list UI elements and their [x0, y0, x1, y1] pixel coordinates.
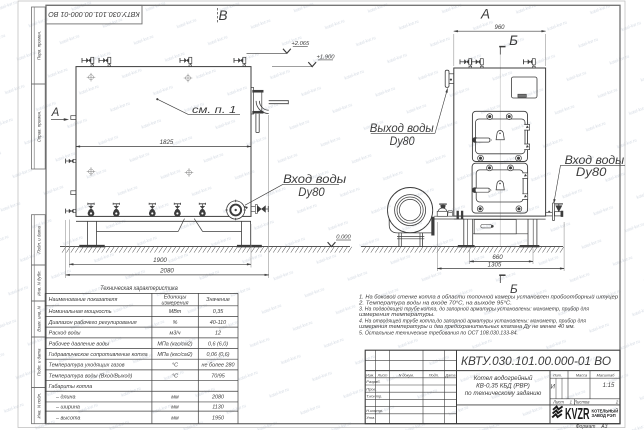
- svg-text:Подп. и дата: Подп. и дата: [36, 348, 41, 376]
- svg-text:KVZR: KVZR: [565, 406, 590, 423]
- svg-text:Справ. примен.: Справ. примен.: [36, 111, 41, 143]
- svg-text:1900: 1900: [153, 257, 167, 264]
- svg-text:+2.065: +2.065: [291, 41, 310, 47]
- svg-text:Подп. и дата: Подп. и дата: [36, 226, 41, 254]
- svg-text:измерения температуры.: измерения температуры.: [359, 312, 435, 318]
- svg-text:Котел водогрейный: Котел водогрейный: [474, 375, 533, 382]
- svg-text:МПа (кгс/см2): МПа (кгс/см2): [157, 341, 192, 347]
- svg-text:В: В: [218, 8, 227, 23]
- svg-text:Разраб.: Разраб.: [366, 379, 380, 384]
- svg-text:70/95: 70/95: [211, 373, 225, 379]
- svg-text:А3: А3: [600, 424, 607, 430]
- svg-text:Листов: Листов: [573, 400, 590, 405]
- svg-text:1305: 1305: [488, 261, 502, 268]
- svg-text:МВт: МВт: [169, 309, 182, 315]
- svg-text:5. Остальные технические треб: 5. Остальные технические требования по О…: [359, 330, 518, 336]
- svg-text:Изм.: Изм.: [366, 374, 374, 378]
- svg-text:не более 280: не более 280: [202, 363, 235, 369]
- svg-text:1950: 1950: [212, 416, 224, 422]
- svg-text:Пров.: Пров.: [366, 386, 377, 391]
- svg-text:Температура уходящих газов: Температура уходящих газов: [49, 363, 125, 369]
- svg-text:по техническому заданию: по техническому заданию: [465, 390, 542, 397]
- svg-text:Взам. инв. N: Взам. инв. N: [36, 305, 41, 331]
- svg-text:КВ-0,35 КБД (РВР): КВ-0,35 КБД (РВР): [476, 383, 530, 390]
- svg-text:%: %: [173, 320, 178, 326]
- svg-text:Рабочее давление воды: Рабочее давление воды: [49, 341, 109, 347]
- svg-text:Утв.: Утв.: [366, 415, 375, 420]
- svg-text:N докум.: N докум.: [399, 374, 414, 378]
- svg-text:ЗАВОД РЭП: ЗАВОД РЭП: [592, 413, 616, 418]
- svg-text:Н.контр.: Н.контр.: [366, 408, 383, 413]
- svg-text:0,06 (0,6): 0,06 (0,6): [206, 352, 229, 358]
- svg-text:мм: мм: [171, 416, 179, 422]
- svg-text:+1.900: +1.900: [317, 54, 336, 60]
- svg-text:Лит.: Лит.: [552, 373, 562, 377]
- svg-text:мм: мм: [171, 405, 179, 411]
- svg-text:Наименование показателя: Наименование показателя: [49, 297, 118, 303]
- svg-text:1: 1: [570, 400, 572, 405]
- svg-text:Подп.: Подп.: [429, 374, 439, 378]
- svg-text:Номинальная мощность: Номинальная мощность: [49, 309, 112, 315]
- svg-text:Вход воды: Вход воды: [565, 153, 625, 167]
- svg-text:Dy80: Dy80: [390, 136, 416, 148]
- svg-text:Инв. N дубл.: Инв. N дубл.: [36, 270, 41, 295]
- svg-text:см. п. 1: см. п. 1: [192, 104, 236, 116]
- svg-text:Формат: Формат: [576, 424, 596, 430]
- svg-text:660: 660: [492, 254, 503, 261]
- svg-text:Расход воды: Расход воды: [49, 331, 81, 337]
- svg-text:Вход воды: Вход воды: [283, 172, 346, 186]
- svg-text:960: 960: [494, 25, 505, 31]
- svg-text:2080: 2080: [159, 268, 174, 275]
- svg-text:12: 12: [215, 331, 221, 337]
- svg-text:Дата: Дата: [444, 374, 455, 378]
- svg-text:Лист: Лист: [377, 374, 388, 378]
- svg-text:мм: мм: [171, 395, 179, 401]
- svg-text:Выход воды: Выход воды: [370, 121, 434, 135]
- svg-text:Техническая характеристика: Техническая характеристика: [100, 285, 178, 292]
- svg-text:– ширина: – ширина: [55, 405, 80, 411]
- svg-text:Dy80: Dy80: [576, 167, 607, 179]
- svg-text:КВТУ.030.101.00.000-01 ВО: КВТУ.030.101.00.000-01 ВО: [461, 356, 611, 368]
- svg-text:Б: Б: [509, 33, 518, 48]
- svg-text:°С: °С: [172, 373, 178, 379]
- svg-text:Dy80: Dy80: [298, 187, 325, 199]
- svg-text:Значение: Значение: [206, 297, 230, 303]
- svg-text:– высота: – высота: [55, 416, 80, 422]
- svg-text:Т.контр.: Т.контр.: [366, 394, 382, 399]
- svg-text:Габариты котла: Габариты котла: [49, 384, 93, 390]
- svg-text:МПа (кгс/см2): МПа (кгс/см2): [157, 352, 192, 358]
- svg-text:И: И: [551, 385, 556, 391]
- svg-text:измерения температуры и два пр: измерения температуры и два предохраните…: [359, 324, 575, 330]
- svg-text:Масштаб: Масштаб: [597, 373, 616, 377]
- svg-text:Перв. примен.: Перв. примен.: [36, 31, 41, 60]
- svg-text:– длина: – длина: [55, 395, 75, 401]
- svg-text:0,6 (6,0): 0,6 (6,0): [208, 341, 228, 347]
- svg-text:2080: 2080: [211, 395, 224, 401]
- svg-text:Лист: Лист: [552, 400, 564, 405]
- svg-text:Инв. N подл.: Инв. N подл.: [36, 393, 41, 419]
- svg-text:1. На боковой стенке котла в: 1. На боковой стенке котла в области топ…: [359, 294, 618, 301]
- svg-text:А: А: [51, 107, 60, 119]
- svg-text:Температура воды (Вход/Выход): Температура воды (Вход/Выход): [49, 373, 133, 379]
- svg-text:1130: 1130: [212, 405, 224, 411]
- svg-text:м3/ч: м3/ч: [170, 331, 181, 337]
- svg-text:0,35: 0,35: [213, 309, 224, 315]
- svg-text:А: А: [480, 7, 490, 22]
- svg-text:1:15: 1:15: [603, 383, 615, 389]
- svg-text:Масса: Масса: [576, 373, 587, 377]
- svg-text:Гидравлическое сопротивление к: Гидравлическое сопротивление котла: [49, 352, 148, 358]
- svg-text:КВТУ.030.101.00.000-01 ВО: КВТУ.030.101.00.000-01 ВО: [48, 10, 140, 19]
- svg-text:0.000: 0.000: [336, 235, 351, 241]
- svg-text:40-110: 40-110: [210, 320, 226, 326]
- svg-text:измерения: измерения: [162, 301, 189, 307]
- svg-text:1825: 1825: [160, 139, 174, 146]
- svg-text:°С: °С: [172, 363, 178, 369]
- svg-text:Диапазон рабочего регулировани: Диапазон рабочего регулирования: [48, 320, 137, 326]
